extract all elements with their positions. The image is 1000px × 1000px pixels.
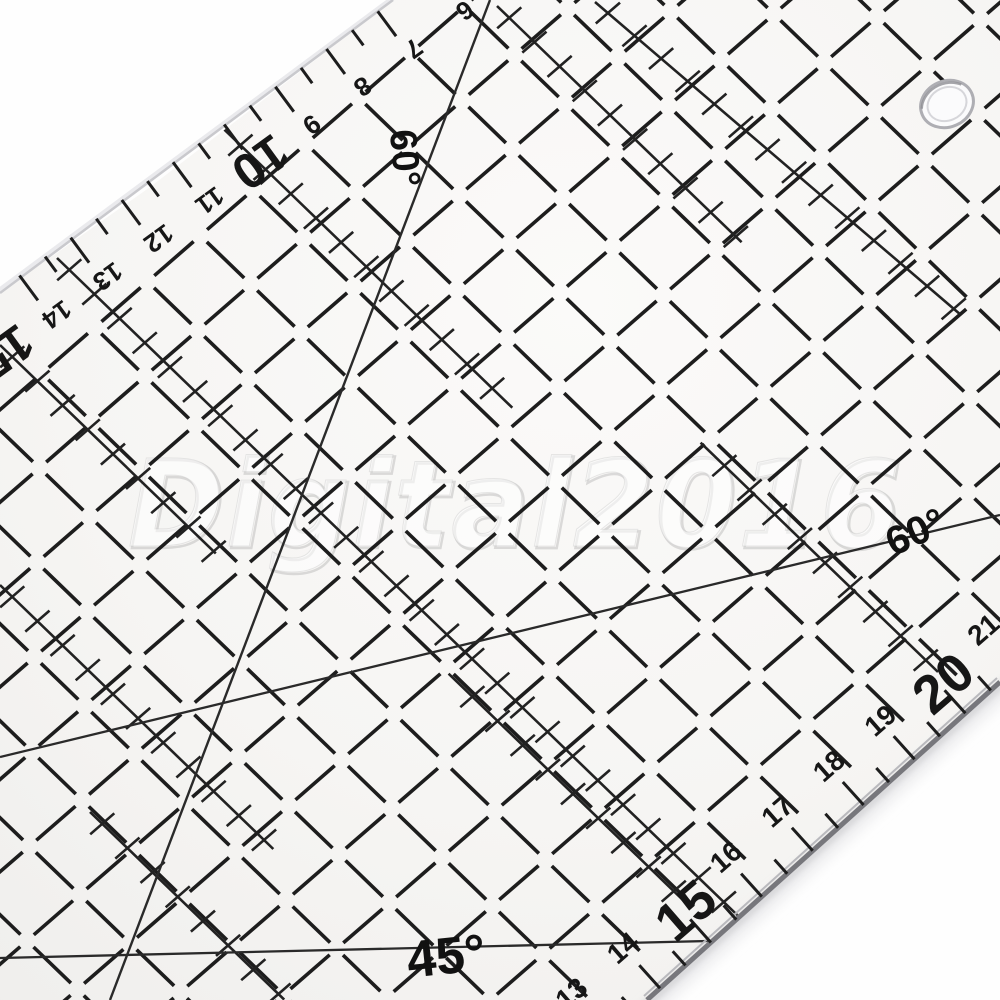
ruler-scene: Digital2016 Digital2016 6789101112131415…: [0, 0, 1000, 1000]
angle-60-top: 60°: [381, 128, 428, 189]
ruler-product-photo: Digital2016 Digital2016 6789101112131415…: [0, 0, 1000, 1000]
angle-45-bottom: 45°: [404, 924, 488, 990]
